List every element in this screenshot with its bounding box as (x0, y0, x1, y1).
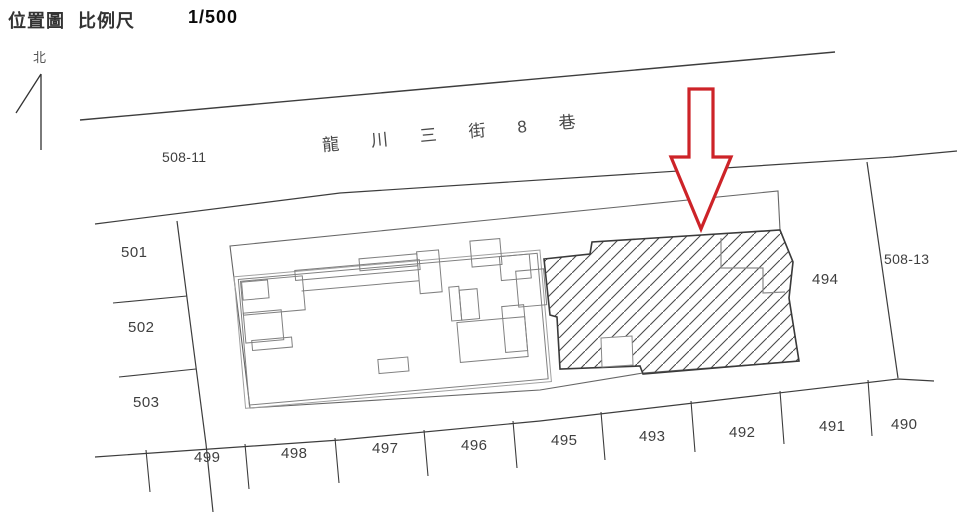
north-arrow-icon (16, 74, 41, 150)
boundary-left-column (177, 221, 213, 512)
parcel-label-496: 496 (461, 437, 488, 454)
parcel-label-508-11: 508-11 (162, 149, 206, 165)
street-top-edge (80, 52, 835, 120)
parcel-label-491: 491 (819, 418, 846, 435)
parcel-label-502: 502 (128, 319, 155, 336)
building-outlines (233, 235, 554, 408)
hatched-parcel-notch (601, 336, 633, 367)
scale-label: 比例尺 (78, 7, 135, 33)
street-bottom-edge (95, 151, 957, 224)
red-pointer-arrow-icon (671, 89, 731, 229)
parcel-label-498: 498 (281, 445, 308, 462)
page-title: 位置圖 (8, 7, 65, 33)
bottom-row-line (95, 379, 934, 457)
parcel-label-497: 497 (372, 440, 399, 457)
parcel-label-501: 501 (121, 244, 148, 261)
bottom-row-ticks (146, 380, 872, 492)
parcel-label-492: 492 (729, 424, 756, 441)
left-column-ticks (113, 296, 196, 377)
boundary-494-508-13 (867, 162, 898, 378)
location-map: 位置圖 比例尺 1/500 北 龍川三街8巷 508-11 501 502 50… (0, 0, 960, 516)
highlighted-parcel-hatched (544, 230, 799, 374)
parcel-label-490: 490 (891, 416, 918, 433)
parcel-label-503: 503 (133, 394, 160, 411)
parcel-label-493: 493 (639, 428, 666, 445)
north-label: 北 (33, 47, 46, 66)
parcel-label-494: 494 (812, 271, 839, 288)
parcel-label-499: 499 (194, 449, 221, 466)
parcel-label-495: 495 (551, 432, 578, 449)
scale-value: 1/500 (188, 7, 238, 28)
parcel-label-508-13: 508-13 (884, 251, 929, 267)
